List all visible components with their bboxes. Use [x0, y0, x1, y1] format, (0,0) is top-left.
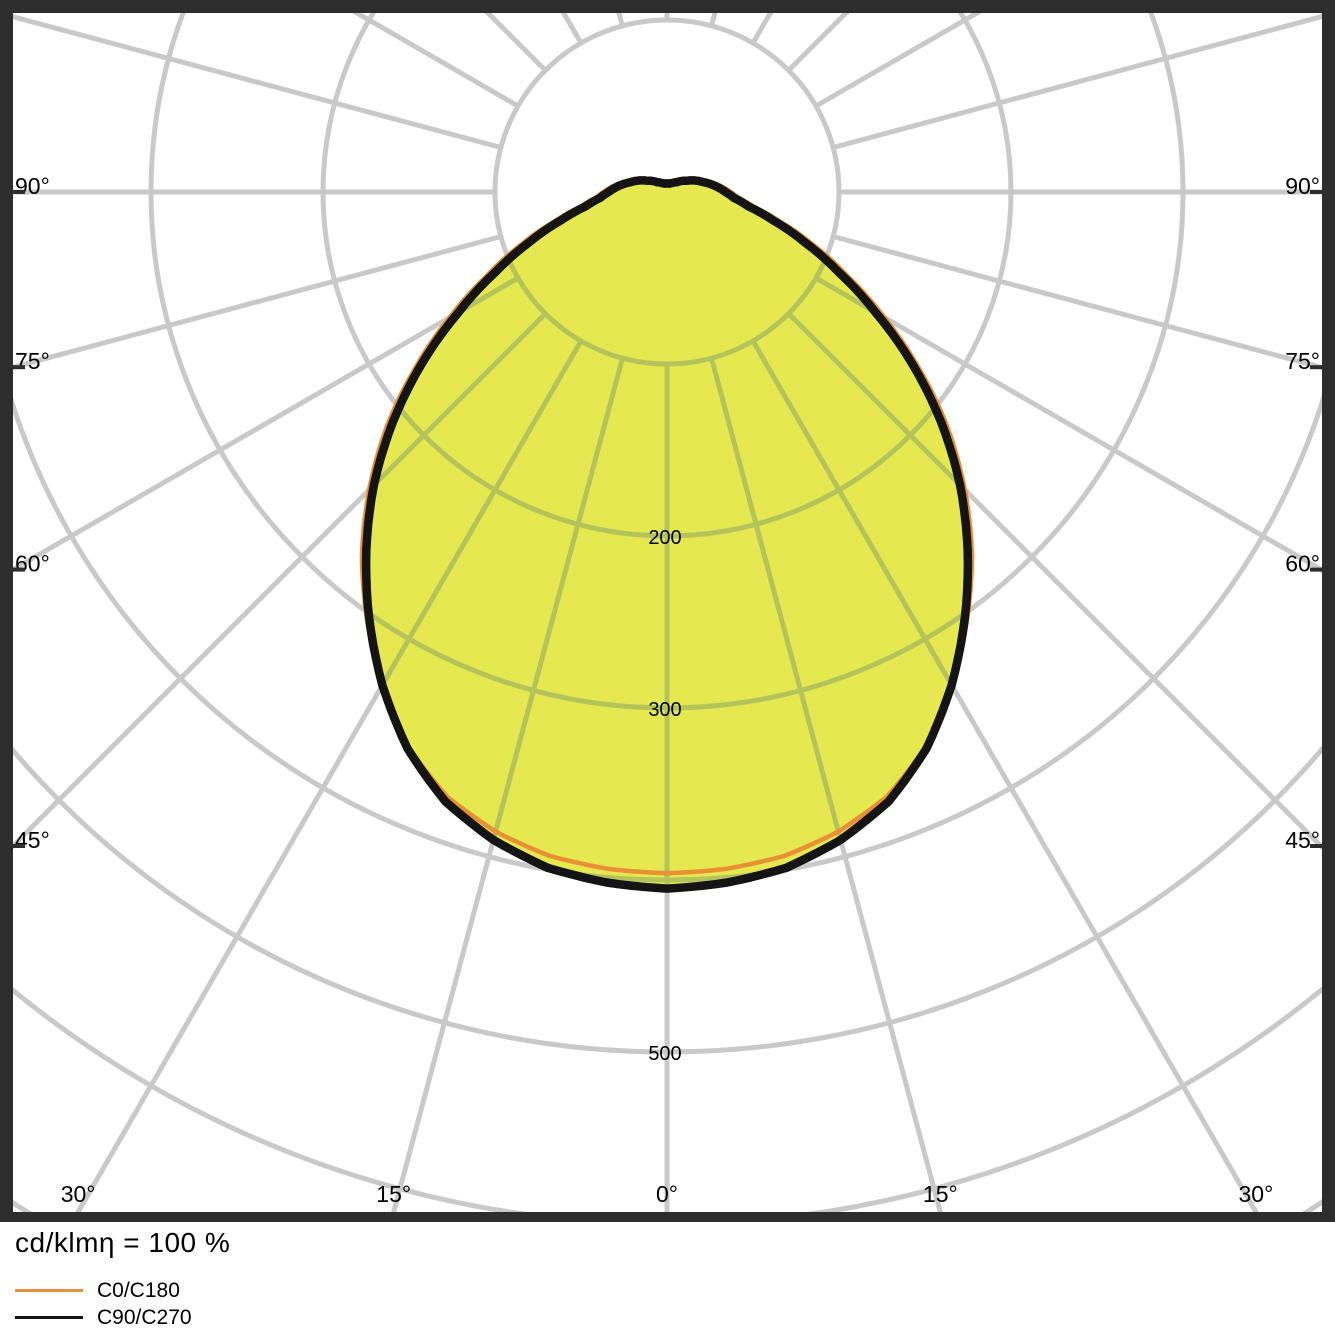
angle-label-right-90: 90°	[1285, 173, 1320, 199]
angle-label-left-60: 60°	[15, 551, 50, 577]
ring-label-200: 200	[648, 527, 681, 549]
tick-right-60	[1310, 568, 1322, 572]
tick-right-45	[1310, 844, 1322, 848]
tick-left-60	[13, 568, 25, 572]
angle-label-bottom-1: 15°	[376, 1181, 411, 1207]
angle-label-left-75: 75°	[15, 348, 50, 374]
legend-rows: C0/C180 C90/C270	[15, 1277, 230, 1331]
angle-label-bottom-2: 0°	[656, 1181, 678, 1207]
tick-left-90	[13, 190, 25, 194]
angle-label-right-60: 60°	[1285, 551, 1320, 577]
angle-label-bottom-0: 30°	[61, 1181, 96, 1207]
tick-left-45	[13, 844, 25, 848]
angle-label-right-45: 45°	[1285, 827, 1320, 853]
scale-note: cd/klmη = 100 %	[15, 1227, 230, 1259]
c0-c180-label: C0/C180	[97, 1279, 180, 1303]
tick-right-90	[1310, 190, 1322, 194]
angle-label-left-90: 90°	[15, 173, 50, 199]
frame-left	[0, 0, 13, 1222]
c90-c270-label: C90/C270	[97, 1306, 192, 1330]
frame-bottom	[0, 1212, 1335, 1222]
tick-left-75	[13, 365, 25, 369]
tick-right-75	[1310, 365, 1322, 369]
frame-top	[0, 0, 1335, 13]
angle-label-left-45: 45°	[15, 827, 50, 853]
ring-label-300: 300	[648, 699, 681, 721]
ring-label-500: 500	[648, 1043, 681, 1065]
angle-label-bottom-4: 30°	[1239, 1181, 1274, 1207]
legend: cd/klmη = 100 % C0/C180 C90/C270	[15, 1227, 230, 1331]
c90-c270-line-swatch	[15, 1316, 83, 1319]
polar-photometric-chart: 20030050090°90°75°75°60°60°45°45°30°15°0…	[0, 0, 1335, 1335]
photometric-diagram-page: 20030050090°90°75°75°60°60°45°45°30°15°0…	[0, 0, 1335, 1335]
c0-c180-line-swatch	[15, 1289, 83, 1292]
legend-item-c0-c180: C0/C180	[15, 1277, 230, 1304]
angle-label-bottom-3: 15°	[923, 1181, 958, 1207]
angle-label-right-75: 75°	[1285, 348, 1320, 374]
legend-item-c90-c270: C90/C270	[15, 1304, 230, 1331]
frame-right	[1322, 0, 1335, 1222]
